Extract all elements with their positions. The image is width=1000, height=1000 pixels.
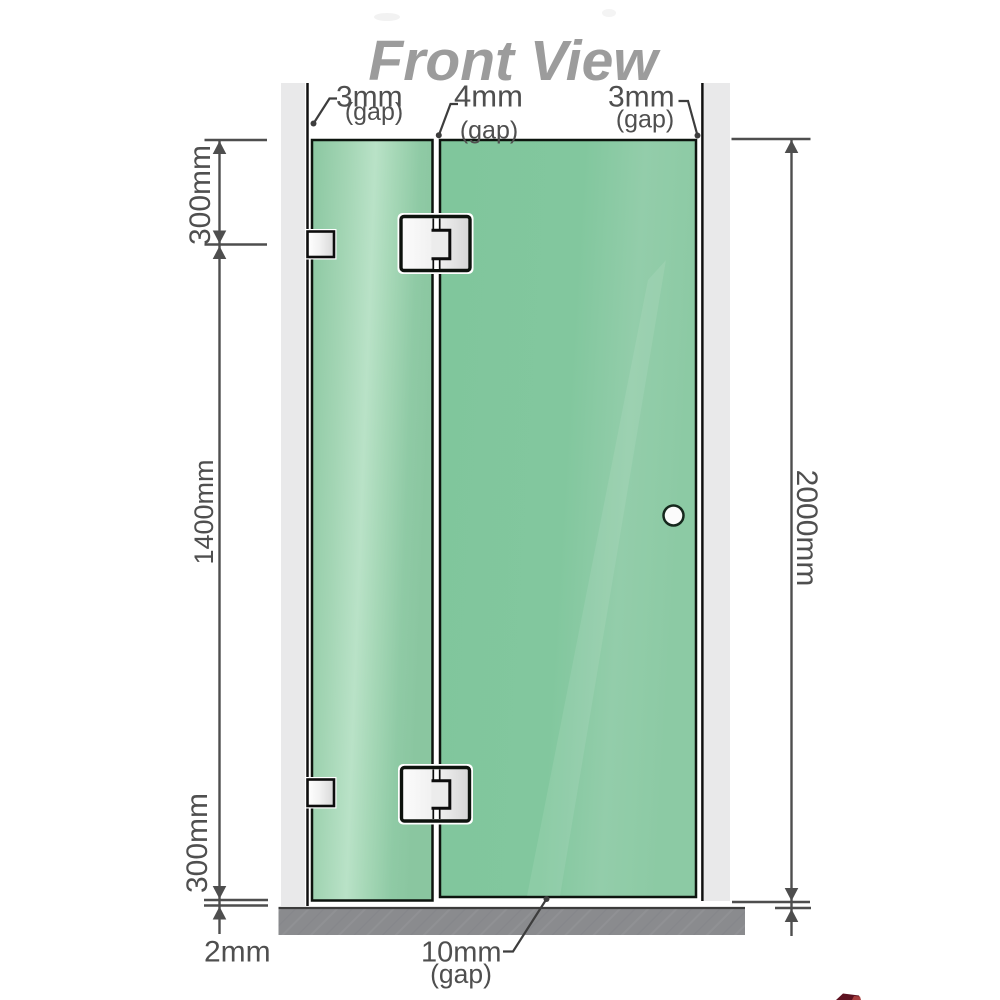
svg-text:(gap): (gap) [430,959,492,989]
svg-text:300mm: 300mm [184,145,217,245]
svg-text:(gap): (gap) [345,98,403,126]
svg-text:1400mm: 1400mm [189,459,219,564]
svg-text:300mm: 300mm [181,793,214,893]
svg-text:2000mm: 2000mm [790,470,823,587]
svg-text:(gap): (gap) [616,106,674,134]
svg-text:4mm: 4mm [454,79,523,114]
svg-text:(gap): (gap) [460,117,518,145]
svg-text:2mm: 2mm [204,936,271,969]
